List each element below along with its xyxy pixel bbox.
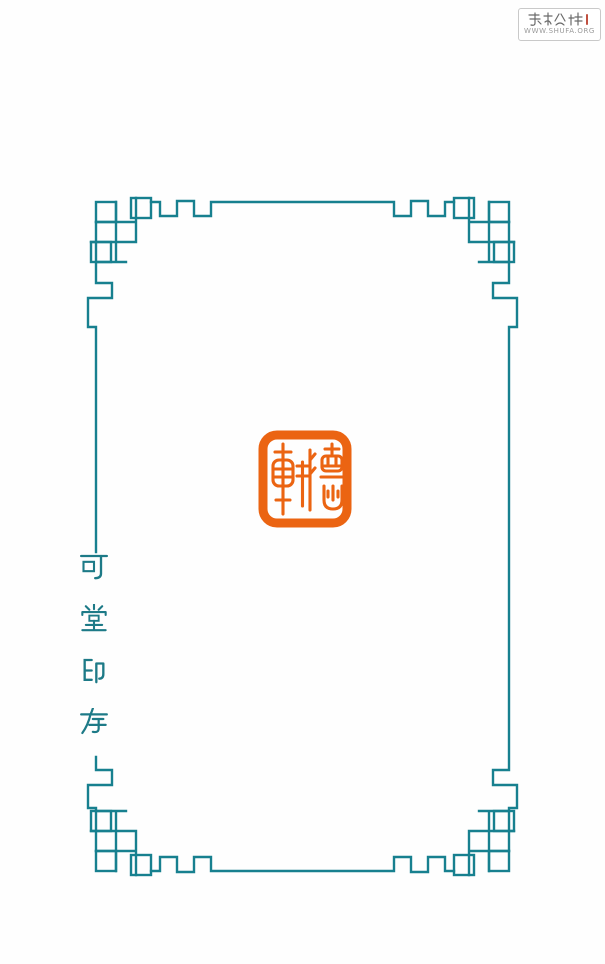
- watermark-badge: 书艺公社 WWW.SHUFA.ORG: [518, 8, 601, 41]
- side-char-ke-icon: [80, 552, 108, 581]
- watermark-site-name: 书艺公社: [560, 9, 561, 10]
- scan-page: 德軒: [0, 0, 605, 964]
- corner-ornament-bottom-right: [454, 811, 514, 875]
- side-caption-column: 可堂印存: [80, 552, 108, 760]
- frame-right-border: [493, 222, 517, 851]
- calligraphy-logo-icon: [527, 12, 593, 27]
- side-char-yin-icon: [80, 656, 108, 685]
- seal-stamp-graphic: [258, 430, 352, 528]
- seal-stamp: 德軒: [258, 430, 352, 528]
- corner-ornament-top-left: [91, 198, 151, 262]
- watermark-url: WWW.SHUFA.ORG: [519, 27, 600, 36]
- side-char-tang-icon: [80, 604, 108, 633]
- frame-bottom-border: [151, 857, 454, 872]
- corner-ornament-top-right: [454, 198, 514, 262]
- side-char-cun-icon: [80, 708, 108, 737]
- seal-char-de-icon: [310, 444, 344, 510]
- seal-char-xuan-icon: [273, 444, 308, 514]
- corner-ornament-bottom-left: [91, 811, 151, 875]
- frame-top-border: [151, 201, 454, 216]
